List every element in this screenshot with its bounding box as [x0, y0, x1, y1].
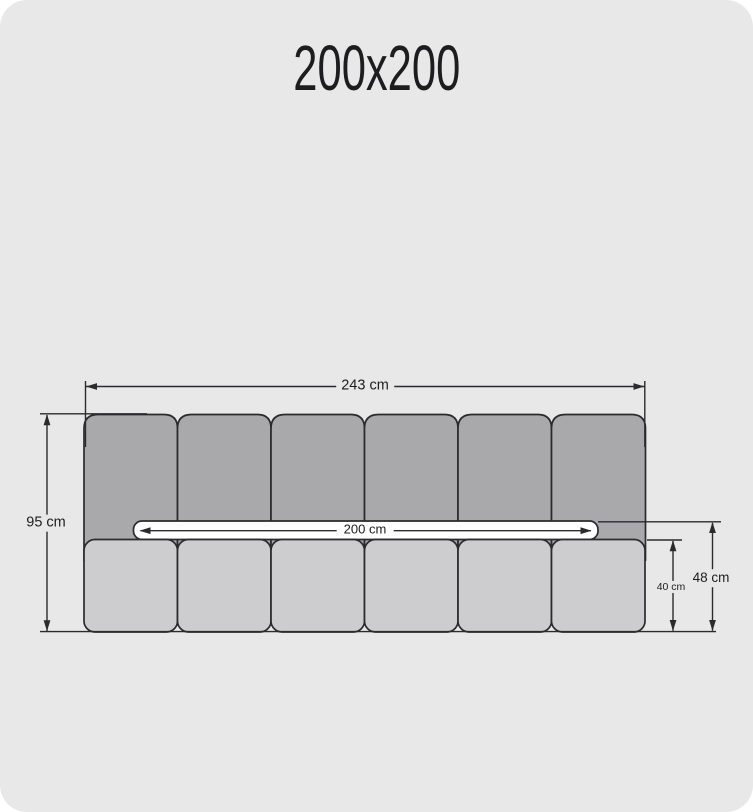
card-background: 200x200: [0, 0, 753, 812]
seat-cushion-panel: [84, 540, 178, 633]
seat-cushion-panel: [365, 540, 459, 633]
arrowhead-up-icon: [670, 540, 677, 551]
sofa-dimension-diagram: [0, 0, 753, 812]
arrowhead-down-icon: [44, 620, 51, 631]
dimension-label-inner-width: 200 cm: [337, 523, 394, 538]
arrowhead-down-icon: [709, 620, 716, 631]
seat-cushion-panel: [178, 540, 272, 633]
arrowhead-left-icon: [86, 383, 97, 390]
arrowhead-down-icon: [670, 620, 677, 631]
arrowhead-up-icon: [709, 522, 716, 533]
dimension-label-seat-height: 40 cm: [654, 581, 689, 593]
dimension-label-bar-height: 48 cm: [689, 569, 734, 587]
seat-cushions: [84, 540, 645, 633]
seat-cushion-panel: [552, 540, 646, 633]
dimension-label-overall-width: 243 cm: [336, 378, 394, 395]
arrowhead-up-icon: [44, 414, 51, 425]
arrowhead-right-icon: [634, 383, 645, 390]
dimension-label-overall-height: 95 cm: [21, 515, 71, 532]
seat-cushion-panel: [458, 540, 552, 633]
seat-cushion-panel: [271, 540, 365, 633]
